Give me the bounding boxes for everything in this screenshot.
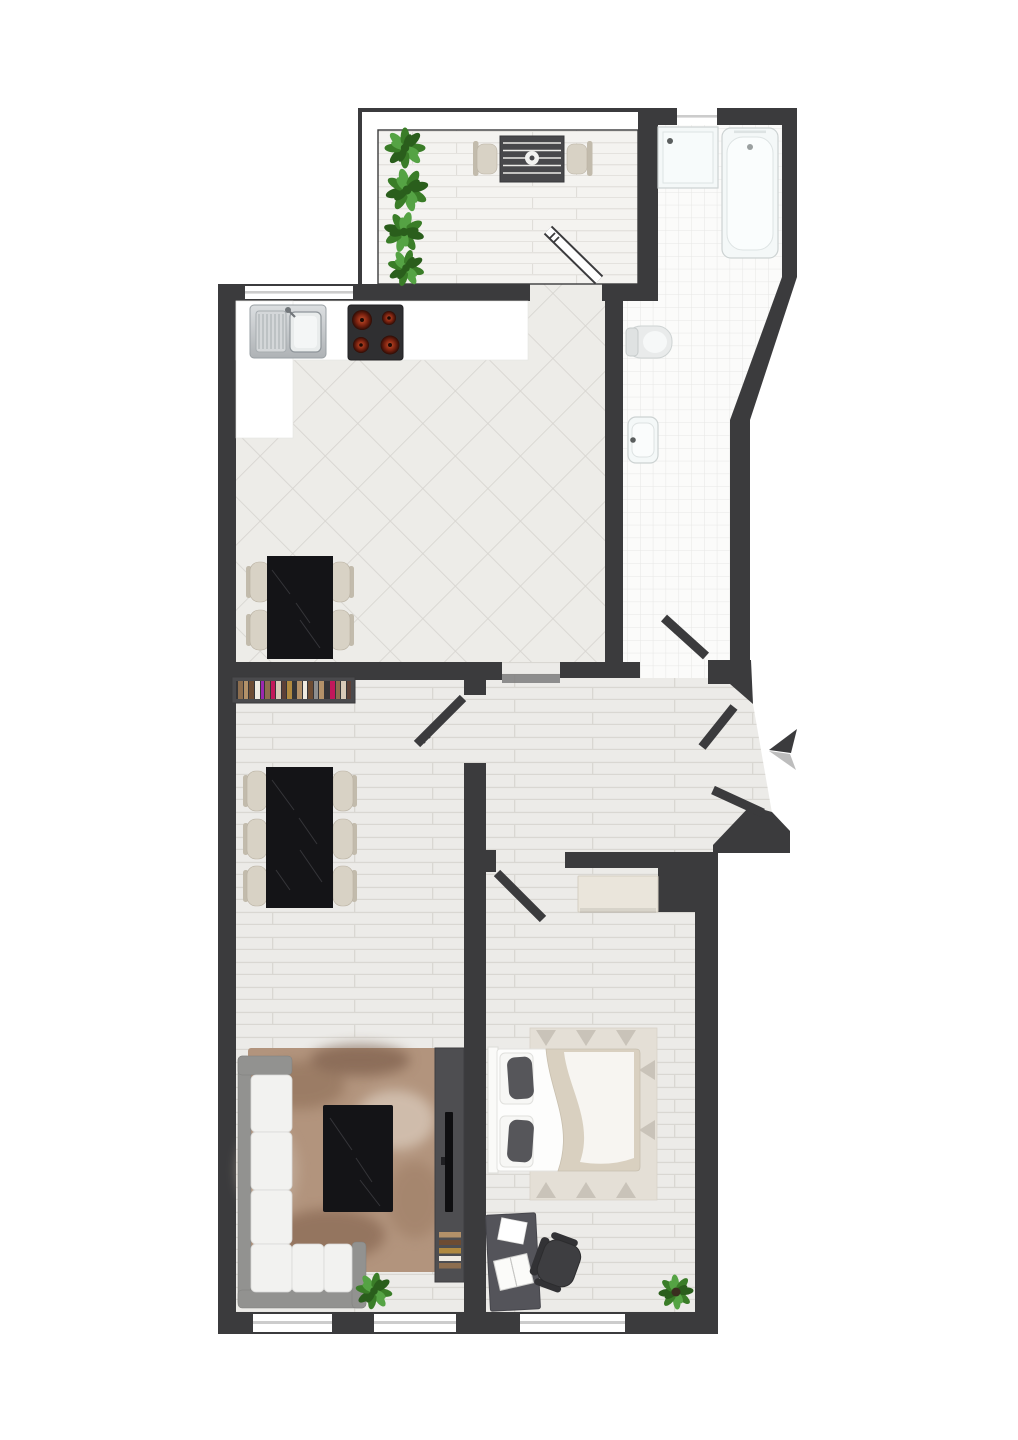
wall-kitchen-bath (605, 284, 623, 678)
cooktop (348, 305, 403, 360)
wall-stub (464, 662, 486, 695)
tv-unit (435, 1048, 464, 1282)
plant-pot (672, 1288, 681, 1297)
kitchen-table (267, 556, 333, 659)
basin-faucet (630, 437, 636, 443)
floor-plan-page (0, 0, 1018, 1440)
floor-plan-drawing (0, 0, 1018, 1440)
tv-screen (445, 1112, 453, 1212)
wall-bath-north-a (638, 108, 677, 125)
bathtub (722, 128, 778, 258)
wall-bath-east-upper (782, 108, 797, 277)
tv-unit-books (439, 1232, 461, 1269)
wall-room-divider (464, 763, 486, 1312)
balcony-chair-right (567, 144, 587, 174)
bathtub-faucet (747, 144, 753, 150)
wall-bath-east-lower (730, 420, 750, 662)
living-window-1 (253, 1314, 332, 1332)
coffee-table (323, 1105, 393, 1212)
balcony-chair-left (477, 144, 497, 174)
kitchen-window (245, 286, 353, 299)
bathroom-window (677, 110, 717, 123)
toilet (626, 326, 672, 358)
wash-basin (628, 417, 658, 463)
sofa-arm-top (238, 1056, 292, 1075)
sink-unit (250, 305, 326, 358)
wall-balcony-bath-divider (638, 108, 658, 301)
wall-hinge-bump (486, 850, 496, 872)
desk (486, 1213, 541, 1311)
pillow-1 (507, 1056, 535, 1100)
kitchen-opening-threshold (502, 674, 560, 683)
balcony-plant-1 (385, 128, 426, 169)
wardrobe (578, 876, 658, 913)
double-bed (488, 1047, 640, 1173)
pillow-2 (507, 1119, 535, 1163)
bookshelf (232, 677, 355, 703)
balcony-rail-north (358, 108, 638, 112)
wall-west (218, 284, 236, 1334)
shower-drain (667, 138, 673, 144)
desk-paper (498, 1218, 528, 1245)
dining-table-set (243, 767, 357, 908)
balcony-rail-west (358, 108, 362, 284)
bedroom-window (520, 1314, 625, 1332)
wall-bedroom-north (565, 852, 658, 868)
wall-kitchen-south-b (560, 662, 623, 678)
living-window-2 (374, 1314, 456, 1332)
dining-table (266, 767, 333, 908)
entrance-arrow-icon (769, 729, 797, 770)
wall-bedroom-east (695, 852, 718, 1334)
shower (658, 127, 718, 188)
